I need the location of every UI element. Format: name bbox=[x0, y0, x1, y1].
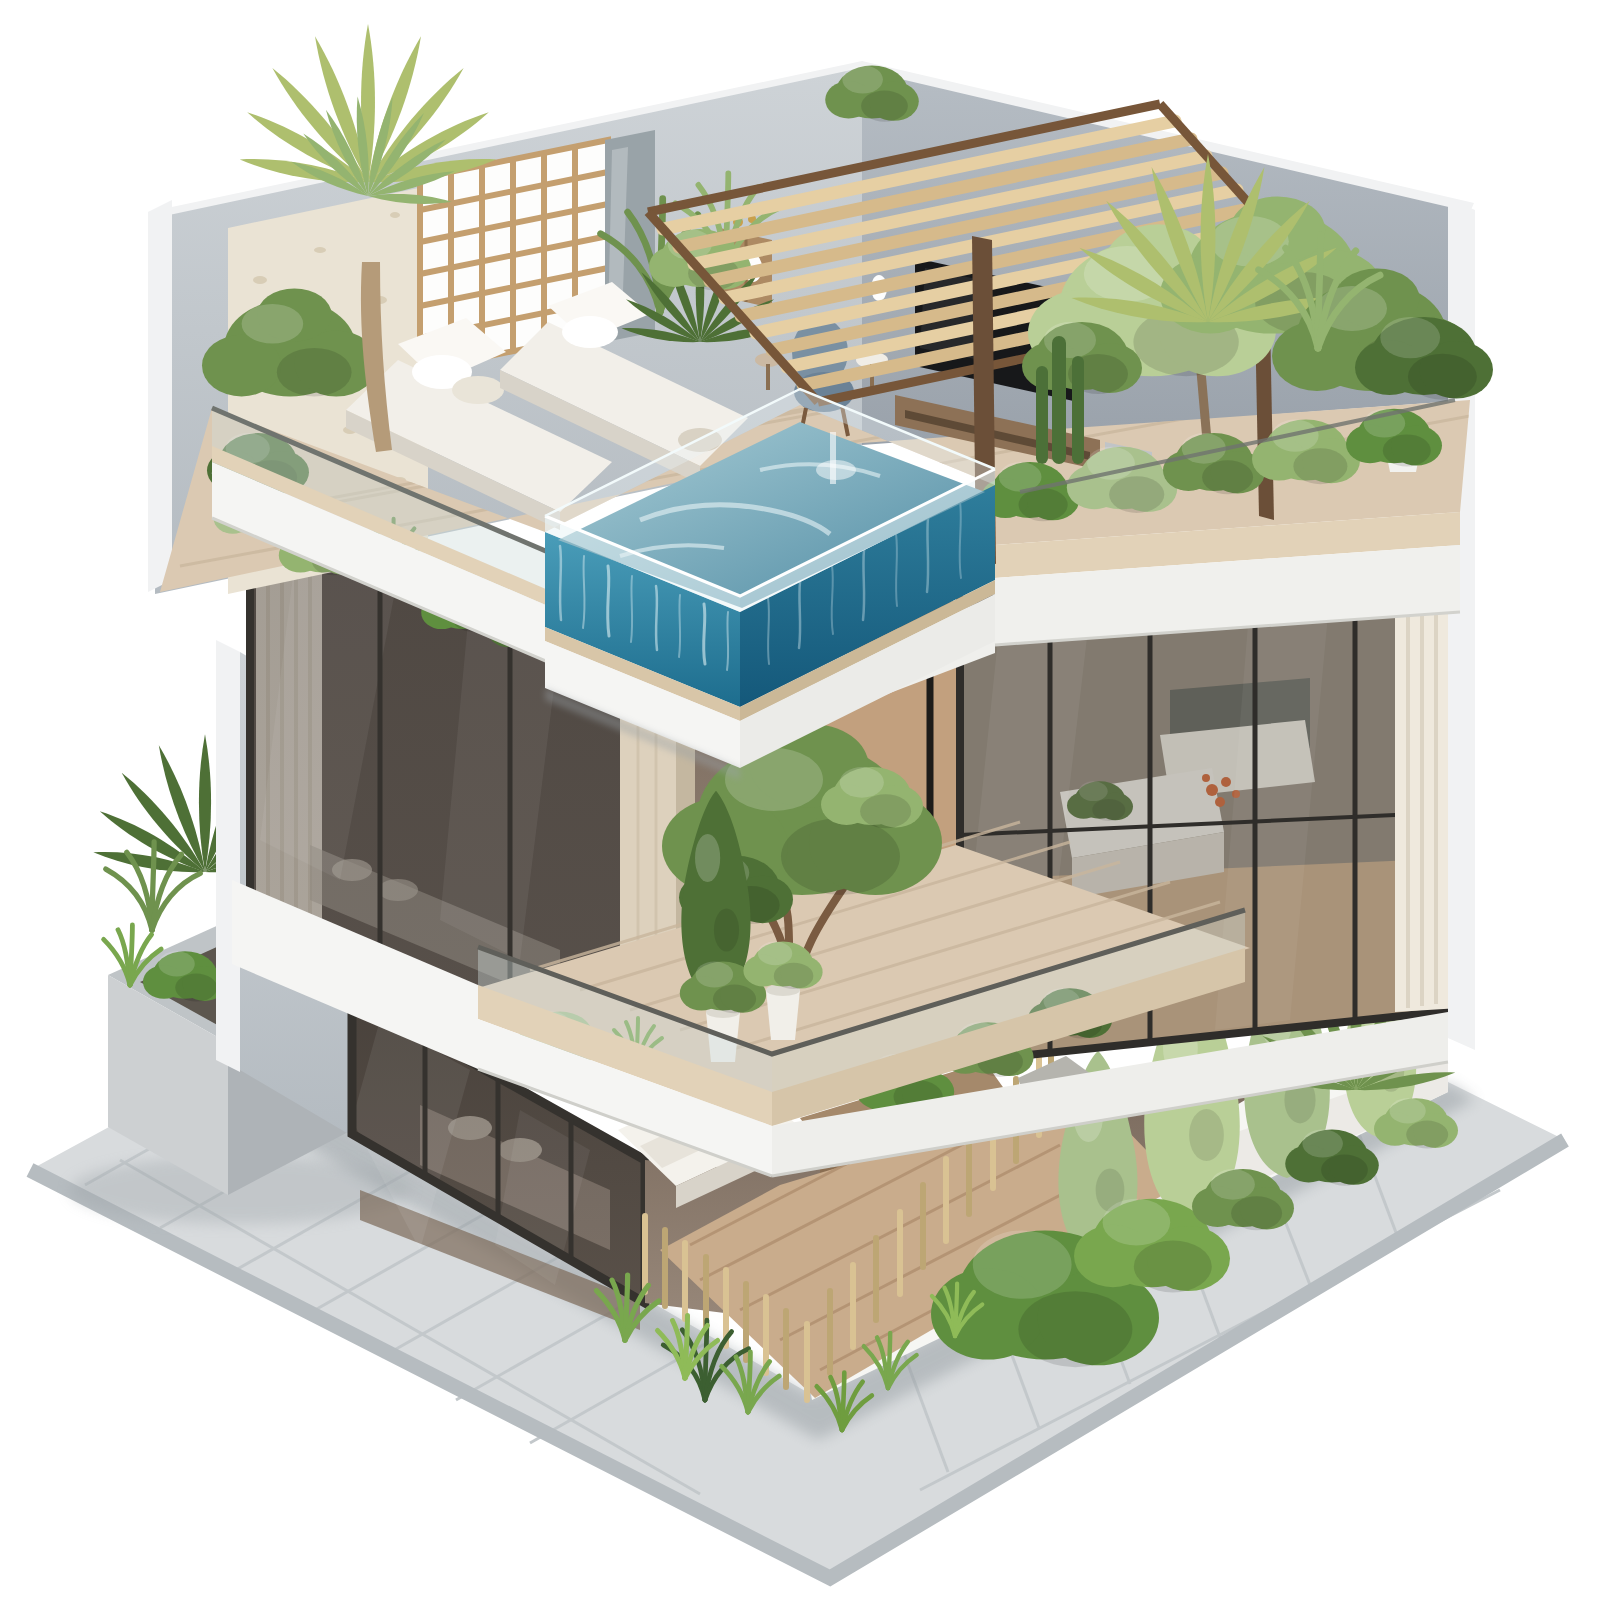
pot-shrub bbox=[680, 962, 766, 1014]
bush bbox=[1022, 322, 1142, 394]
glass-overlay bbox=[960, 578, 1460, 1062]
deck-furniture bbox=[800, 1002, 1005, 1180]
round-tree bbox=[202, 289, 378, 397]
balustrade-rail bbox=[478, 910, 1245, 1054]
left-side-wall bbox=[240, 652, 352, 1136]
bush bbox=[1192, 1169, 1294, 1230]
rail-bush bbox=[981, 462, 1079, 521]
walkway-curb bbox=[30, 1140, 1565, 1578]
grass-tuft bbox=[817, 1373, 872, 1431]
bush bbox=[143, 951, 227, 1001]
bush bbox=[821, 767, 923, 828]
bed-behind-glass bbox=[420, 1105, 610, 1250]
vine-tree bbox=[1058, 1051, 1137, 1262]
hedge bbox=[931, 1230, 1159, 1367]
water-swirls bbox=[620, 464, 880, 556]
pot-shrub bbox=[743, 942, 822, 990]
bathroom-glazing bbox=[955, 578, 1460, 1062]
pergola-post bbox=[1255, 316, 1274, 520]
rattan-chair bbox=[846, 1024, 914, 1072]
tree-trunk bbox=[760, 876, 846, 1010]
garden-rock bbox=[1018, 1056, 1102, 1124]
ground-floor bbox=[216, 640, 1458, 1430]
villa-isometric-render bbox=[0, 0, 1600, 1600]
pool-slab bbox=[545, 641, 740, 768]
tv-screen bbox=[915, 258, 1078, 402]
left-top-trim bbox=[148, 200, 172, 592]
pool-base-trim bbox=[545, 627, 740, 721]
stone-column bbox=[620, 700, 695, 1048]
grass-tuft bbox=[932, 1284, 982, 1337]
palm-fan-plant bbox=[1256, 968, 1456, 1096]
glazing-frames bbox=[960, 578, 1460, 1062]
curtain bbox=[1395, 582, 1460, 1012]
pool-wall-left bbox=[545, 532, 740, 707]
tree bbox=[1160, 196, 1384, 333]
metal-cart bbox=[1105, 442, 1152, 496]
bush bbox=[421, 583, 503, 632]
pool-wall-right bbox=[740, 485, 995, 707]
pool-base-trim bbox=[740, 580, 995, 721]
wall-top-trim bbox=[862, 61, 1474, 212]
bush bbox=[279, 524, 365, 576]
sconce-lamp bbox=[744, 254, 762, 282]
daybed bbox=[500, 282, 748, 484]
daybeds bbox=[346, 282, 748, 530]
fern-plant bbox=[357, 519, 429, 586]
right-back-wall bbox=[862, 66, 1470, 445]
rattan-chair bbox=[926, 1002, 990, 1046]
window-glass bbox=[250, 485, 640, 1068]
ground-deck bbox=[660, 1092, 1180, 1398]
orange-flowers bbox=[1202, 774, 1240, 807]
white-urn bbox=[1382, 424, 1424, 472]
bush bbox=[1355, 317, 1493, 400]
side-table bbox=[755, 353, 781, 367]
bush bbox=[214, 490, 291, 536]
bush bbox=[1374, 1098, 1458, 1148]
roof-slab bbox=[212, 446, 1460, 750]
bed-behind-glass bbox=[310, 845, 560, 1005]
mirror bbox=[1170, 678, 1310, 760]
left-corner-trim bbox=[216, 640, 240, 1072]
floor-globe-lamp bbox=[946, 266, 970, 298]
rail bbox=[212, 408, 548, 552]
rooftop-terrace bbox=[148, 24, 1493, 1050]
right-edge-trim bbox=[1448, 198, 1475, 1050]
rail-bush bbox=[1252, 419, 1360, 484]
rooftop-plants-right bbox=[981, 154, 1493, 521]
left-back-wall bbox=[155, 66, 862, 594]
door-frames bbox=[352, 995, 645, 1303]
daybed bbox=[346, 318, 612, 530]
bush bbox=[517, 1012, 603, 1064]
travertine-panel bbox=[228, 186, 428, 594]
leaf-plant bbox=[663, 1320, 749, 1400]
fern-plant bbox=[675, 173, 779, 270]
balcony-balustrade bbox=[478, 910, 1245, 1116]
pool-float bbox=[816, 460, 856, 480]
bush bbox=[942, 1022, 1033, 1077]
pergola bbox=[648, 104, 1330, 564]
rooftop-plants-left bbox=[202, 24, 779, 494]
timber-picket-fence bbox=[645, 1039, 1051, 1400]
palm-fan-plant bbox=[92, 734, 317, 878]
cactus bbox=[1036, 336, 1084, 464]
pool-ladder bbox=[830, 432, 836, 484]
rail-bush bbox=[1346, 409, 1442, 467]
pergola-frame bbox=[648, 104, 1330, 402]
bush bbox=[856, 1054, 954, 1113]
pool-glass-rim bbox=[545, 389, 995, 612]
sconce-lamp bbox=[871, 275, 887, 301]
plunge-pool bbox=[545, 389, 995, 780]
grass-tuft bbox=[864, 1333, 917, 1388]
water-streaks bbox=[560, 502, 961, 670]
hanging-plant bbox=[649, 229, 751, 290]
interior-wood-floor bbox=[660, 880, 960, 1068]
tv-console bbox=[895, 395, 1100, 470]
tree bbox=[1272, 269, 1472, 392]
middle-floor bbox=[232, 485, 1460, 1176]
ground-bedroom-glazing bbox=[352, 995, 645, 1330]
ground-bed bbox=[618, 1072, 800, 1208]
tv-lounge bbox=[720, 215, 1152, 496]
bush bbox=[1285, 1129, 1379, 1185]
curtain bbox=[256, 505, 322, 953]
tree bbox=[1028, 224, 1276, 376]
deck-planks bbox=[180, 288, 1470, 640]
water-surface bbox=[558, 422, 985, 608]
building-shadow bbox=[205, 1060, 1475, 1440]
concrete-planter bbox=[70, 734, 410, 1224]
side-table bbox=[856, 352, 888, 368]
bush bbox=[1074, 1199, 1230, 1293]
rail bbox=[1020, 400, 1455, 492]
bush bbox=[1028, 988, 1112, 1038]
potted-plants bbox=[680, 942, 823, 1062]
pergola-post bbox=[972, 236, 996, 564]
balcony-garden bbox=[478, 724, 1250, 1125]
tree-trunk bbox=[1200, 360, 1208, 452]
cypress-plant bbox=[681, 791, 750, 1002]
pool-slab bbox=[740, 594, 995, 768]
middle-slab bbox=[232, 880, 1448, 1176]
glass-panel bbox=[212, 408, 548, 616]
bush bbox=[489, 605, 563, 650]
render-canvas bbox=[0, 0, 1600, 1600]
vine-tree bbox=[1144, 967, 1240, 1222]
blue-armchair bbox=[792, 318, 854, 438]
pergola-slats bbox=[663, 121, 1315, 385]
wood-cabinet bbox=[720, 228, 772, 308]
fern-plant bbox=[106, 842, 201, 930]
bush bbox=[679, 856, 793, 924]
roof-balustrade-left bbox=[212, 408, 563, 650]
middle-open-interior bbox=[640, 600, 960, 1068]
rail-bush bbox=[1163, 433, 1265, 494]
grass-tuft bbox=[722, 1352, 780, 1412]
bathtub bbox=[1160, 720, 1315, 798]
lattice-screen bbox=[420, 140, 608, 370]
ground-right-wall bbox=[772, 1058, 1448, 1400]
wall-top-bush bbox=[825, 65, 919, 121]
paving-joints bbox=[85, 1083, 1500, 1494]
vine-tree bbox=[1244, 949, 1330, 1178]
rail-bush bbox=[1067, 447, 1177, 513]
vine-tree bbox=[1344, 944, 1416, 1138]
bush bbox=[228, 914, 336, 979]
wood-paneling bbox=[820, 618, 960, 892]
bush bbox=[207, 433, 309, 494]
palm-crown bbox=[286, 77, 474, 221]
palm-fan-plant bbox=[621, 245, 780, 346]
fountain-grass bbox=[1259, 235, 1381, 348]
stone-walkway bbox=[30, 1060, 1565, 1578]
palm-crown bbox=[239, 24, 498, 189]
window-frames bbox=[250, 485, 640, 1068]
wall-top-trim bbox=[148, 61, 870, 218]
fern-plant bbox=[601, 199, 723, 312]
door-glass bbox=[352, 995, 645, 1303]
grass-tuft bbox=[658, 1316, 718, 1379]
grass-tuft bbox=[614, 1018, 662, 1068]
roof-deck bbox=[160, 288, 1470, 640]
ground-garden bbox=[596, 944, 1458, 1430]
palm-trunk bbox=[361, 262, 392, 452]
balcony-tree bbox=[662, 724, 942, 896]
middle-bedroom-glazing bbox=[250, 485, 640, 1068]
gray-glass-panel bbox=[605, 130, 655, 342]
grass-tuft bbox=[104, 925, 162, 985]
planter-plants bbox=[92, 734, 336, 1001]
bath-plant bbox=[1067, 781, 1133, 821]
fan-palm bbox=[1070, 154, 1346, 330]
grass-tuft bbox=[596, 1275, 658, 1340]
ground-open-interior bbox=[645, 1062, 1245, 1330]
background bbox=[0, 0, 1600, 1600]
vanity bbox=[1060, 768, 1224, 858]
